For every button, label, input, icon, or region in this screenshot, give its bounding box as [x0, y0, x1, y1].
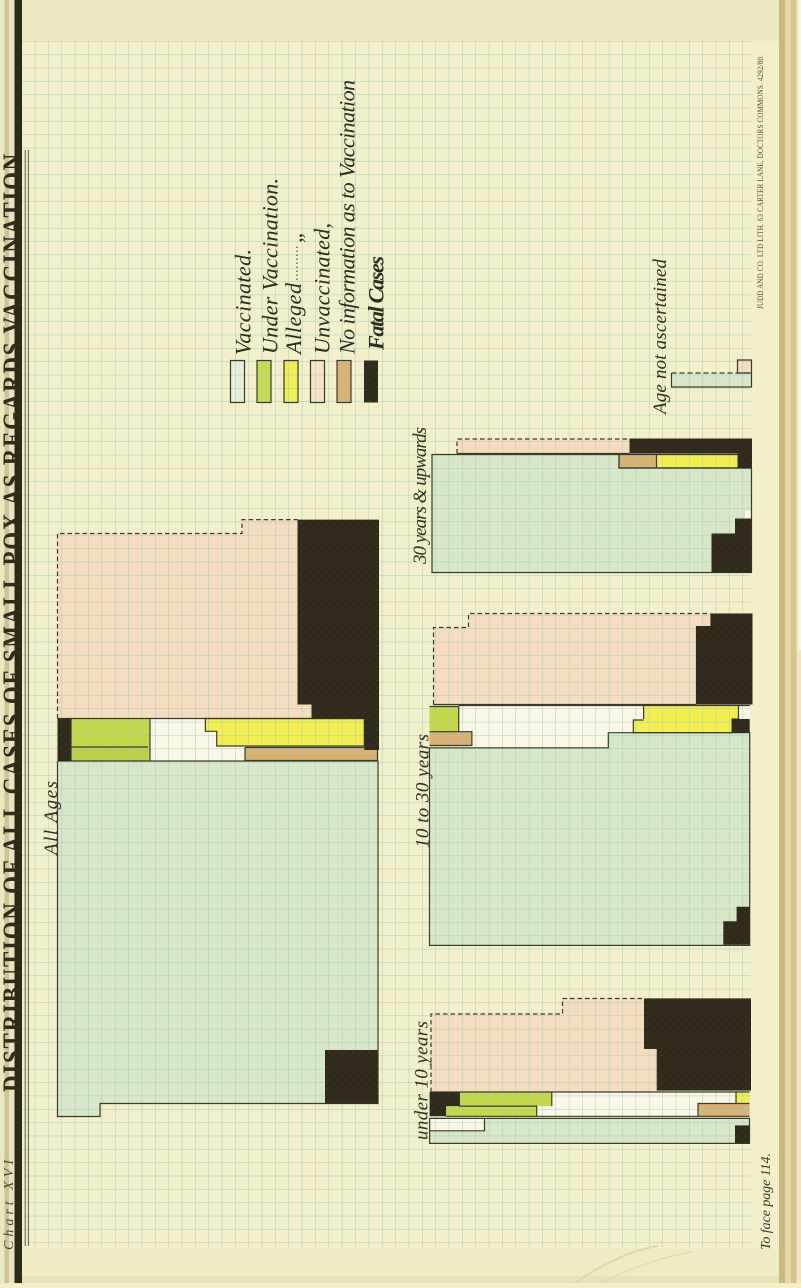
svg-text:„: „	[282, 231, 307, 243]
svg-text:To face page 114.: To face page 114.	[759, 1153, 774, 1250]
svg-text:10 to 30 years: 10 to 30 years	[413, 734, 434, 848]
svg-text:DISTRIBUTION OF ALL CASES OF S: DISTRIBUTION OF ALL CASES OF SMALL POX A…	[0, 152, 27, 1092]
svg-text:Vaccinated.: Vaccinated.	[231, 249, 256, 355]
svg-text:All Ages: All Ages	[41, 781, 62, 857]
svg-text:Fatal Cases: Fatal Cases	[364, 256, 389, 351]
svg-text:Alleged: Alleged	[281, 282, 306, 356]
svg-text:Unvaccinated,: Unvaccinated,	[310, 223, 335, 354]
svg-text:No information as to Vaccinati: No information as to Vaccination	[335, 80, 360, 355]
svg-text:Chart XVI: Chart XVI	[2, 1159, 17, 1250]
svg-text:Age not ascertained: Age not ascertained	[650, 259, 671, 417]
svg-text:30 years & upwards: 30 years & upwards	[410, 427, 431, 565]
svg-text:Under Vaccination.: Under Vaccination.	[258, 178, 283, 354]
svg-text:JUDD AND CO. LTD LITH. 63 CART: JUDD AND CO. LTD LITH. 63 CARTER LANE, D…	[756, 55, 765, 309]
svg-text:under 10 years: under 10 years	[412, 1021, 433, 1140]
